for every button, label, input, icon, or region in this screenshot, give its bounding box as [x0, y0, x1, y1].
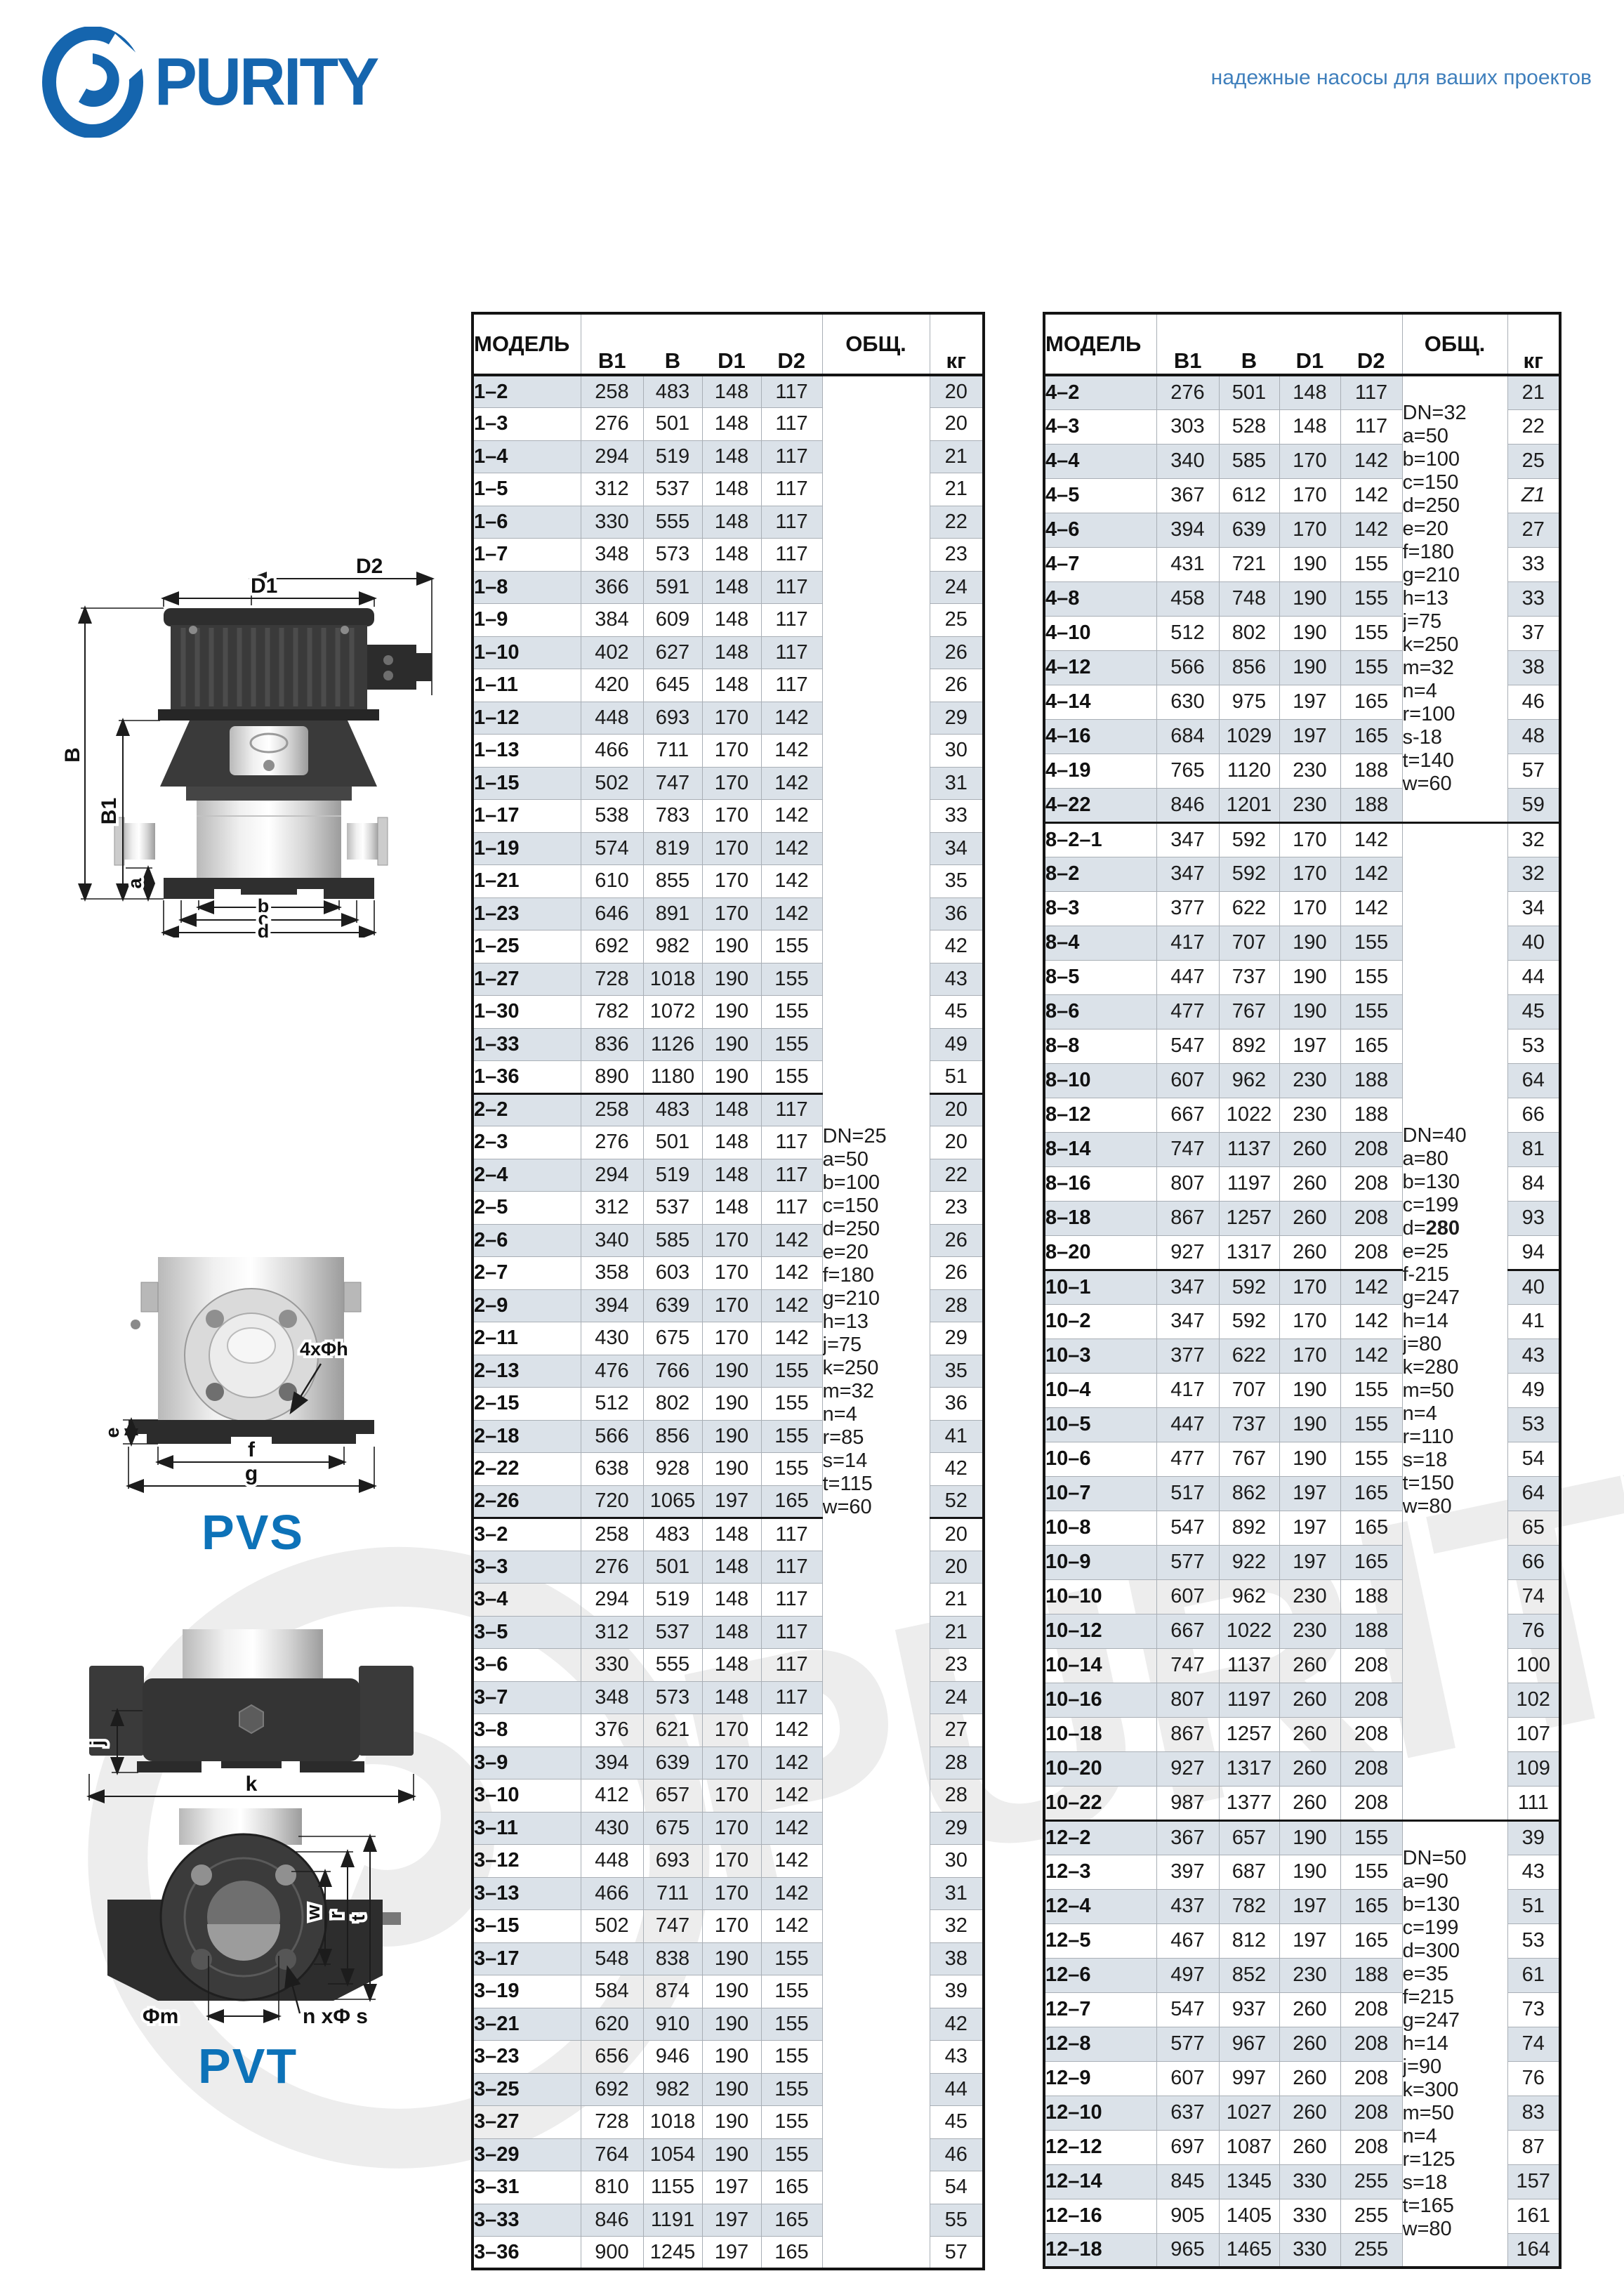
dimension-cell: 148	[702, 1681, 761, 1714]
dimension-cell: 855	[643, 865, 702, 898]
model-cell: 1–13	[473, 735, 581, 768]
dimension-cell: 155	[761, 1942, 822, 1975]
dimension-cell: 547	[1156, 1029, 1219, 1063]
weight-cell: 46	[1507, 685, 1560, 719]
dimension-cell: 312	[581, 1616, 643, 1649]
dimension-cell: 142	[761, 1877, 822, 1910]
model-cell: 1–30	[473, 996, 581, 1029]
dimension-cell: 1201	[1219, 788, 1279, 822]
dimension-cell: 260	[1279, 1786, 1340, 1820]
dimension-cell: 155	[1340, 960, 1402, 994]
model-cell: 1–27	[473, 963, 581, 996]
col-header-obsh: ОБЩ.	[1402, 313, 1507, 375]
model-cell: 3–31	[473, 2171, 581, 2204]
weight-cell: 20	[930, 1126, 984, 1159]
weight-cell: 21	[930, 440, 984, 473]
dimension-cell: 348	[581, 539, 643, 572]
dimension-cell: 962	[1219, 1063, 1279, 1098]
dimension-cell: 483	[643, 375, 702, 408]
dimension-cell: 367	[1156, 1820, 1219, 1855]
dimension-cell: 997	[1219, 2061, 1279, 2096]
model-cell: 4–16	[1044, 719, 1156, 754]
dimension-cell: 802	[1219, 616, 1279, 650]
dimension-cell: 394	[1156, 513, 1219, 547]
dim-label-m: Φm	[143, 2005, 178, 2028]
model-cell: 2–9	[473, 1289, 581, 1322]
dimension-cell: 188	[1340, 1063, 1402, 1098]
model-cell: 3–4	[473, 1584, 581, 1617]
weight-cell: 66	[1507, 1098, 1560, 1132]
dimension-cell: 117	[761, 506, 822, 539]
dimension-cell: 260	[1279, 2061, 1340, 2096]
model-cell: 1–4	[473, 440, 581, 473]
weight-cell: 43	[930, 2041, 984, 2074]
dimension-cell: 117	[761, 571, 822, 604]
dimension-cell: 142	[1340, 1304, 1402, 1338]
weight-cell: 24	[930, 571, 984, 604]
dimension-cell: 376	[581, 1714, 643, 1747]
dimension-cell: 190	[1279, 1820, 1340, 1855]
weight-cell: 23	[930, 1649, 984, 1682]
model-cell: 12–8	[1044, 2027, 1156, 2061]
dimension-cell: 807	[1156, 1166, 1219, 1201]
dimension-cell: 170	[702, 1910, 761, 1943]
dimension-cell: 537	[643, 1192, 702, 1225]
dimension-cell: 852	[1219, 1958, 1279, 1992]
model-cell: 3–8	[473, 1714, 581, 1747]
dimension-cell: 188	[1340, 1958, 1402, 1992]
model-cell: 12–5	[1044, 1923, 1156, 1958]
dimension-cell: 190	[1279, 960, 1340, 994]
model-cell: 3–15	[473, 1910, 581, 1943]
dimension-cell: 170	[702, 832, 761, 865]
dimension-cell: 766	[643, 1355, 702, 1388]
dimension-cell: 622	[1219, 891, 1279, 926]
model-cell: 10–1	[1044, 1270, 1156, 1304]
dimension-cell: 117	[761, 1551, 822, 1584]
dimension-cell: 170	[702, 767, 761, 800]
dimension-cell: 657	[643, 1780, 702, 1813]
dimension-cell: 512	[1156, 616, 1219, 650]
dim-label-d1: D1	[251, 574, 277, 598]
col-header-d1: D1	[702, 313, 761, 375]
weight-cell: 46	[930, 2138, 984, 2171]
dimension-cell: 447	[1156, 960, 1219, 994]
dimension-cell: 230	[1279, 1098, 1340, 1132]
dimension-cell: 577	[1156, 2027, 1219, 2061]
weight-cell: 32	[1507, 857, 1560, 891]
dimension-cell: 620	[581, 2008, 643, 2041]
weight-cell: 22	[930, 506, 984, 539]
dimension-cell: 190	[1279, 1855, 1340, 1889]
weight-cell: 51	[930, 1061, 984, 1094]
weight-cell: 64	[1507, 1063, 1560, 1098]
model-cell: 10–6	[1044, 1442, 1156, 1476]
model-cell: 2–22	[473, 1453, 581, 1486]
dimension-cell: 170	[702, 1224, 761, 1257]
dim-label-bolt: 4xΦh	[300, 1338, 348, 1360]
dimension-cell: 170	[702, 1877, 761, 1910]
weight-cell: 32	[930, 1910, 984, 1943]
model-cell: 10–8	[1044, 1511, 1156, 1545]
model-cell: 4–10	[1044, 616, 1156, 650]
dimension-cell: 987	[1156, 1786, 1219, 1820]
dimension-cell: 197	[702, 2171, 761, 2204]
dim-label-d: d	[258, 921, 270, 938]
dimension-cell: 190	[702, 2008, 761, 2041]
dimension-cell: 155	[761, 1355, 822, 1388]
dimension-cell: 646	[581, 897, 643, 930]
weight-cell: 49	[1507, 1373, 1560, 1407]
model-cell: 3–5	[473, 1616, 581, 1649]
model-cell: 1–36	[473, 1061, 581, 1094]
dimension-cell: 603	[643, 1257, 702, 1290]
dimension-cell: 117	[761, 375, 822, 408]
dimension-cell: 188	[1340, 1579, 1402, 1614]
dimension-cell: 142	[1340, 857, 1402, 891]
dimension-cell: 639	[643, 1289, 702, 1322]
dimension-cell: 260	[1279, 1132, 1340, 1166]
dimension-cell: 377	[1156, 1338, 1219, 1373]
dimension-cell: 1054	[643, 2138, 702, 2171]
dimension-cell: 982	[643, 2073, 702, 2106]
weight-cell: 26	[930, 1257, 984, 1290]
model-cell: 4–8	[1044, 581, 1156, 616]
dimension-cell: 707	[1219, 1373, 1279, 1407]
dimension-cell: 867	[1156, 1201, 1219, 1235]
dimension-cell: 117	[1340, 375, 1402, 409]
dimension-cell: 1317	[1219, 1235, 1279, 1270]
dimension-cell: 170	[1279, 1338, 1340, 1373]
dimension-cell: 190	[1279, 994, 1340, 1029]
dimension-cell: 142	[761, 800, 822, 833]
dimension-cell: 303	[1156, 409, 1219, 444]
dimension-cell: 260	[1279, 2096, 1340, 2130]
weight-cell: 36	[930, 1388, 984, 1421]
dimension-cell: 767	[1219, 994, 1279, 1029]
dimension-cell: 170	[702, 1257, 761, 1290]
weight-cell: 157	[1507, 2164, 1560, 2199]
dimension-cell: 142	[1340, 891, 1402, 926]
dimension-cell: 1027	[1219, 2096, 1279, 2130]
model-cell: 3–2	[473, 1518, 581, 1551]
dimension-cell: 170	[702, 702, 761, 735]
dimension-cell: 437	[1156, 1889, 1219, 1923]
dimension-cell: 165	[761, 1485, 822, 1518]
model-cell: 1–10	[473, 636, 581, 669]
dimension-cell: 190	[702, 1942, 761, 1975]
dimension-cell: 260	[1279, 2130, 1340, 2164]
dimension-cell: 117	[761, 1159, 822, 1192]
model-cell: 12–7	[1044, 1992, 1156, 2027]
dimension-cell: 384	[581, 604, 643, 637]
dimension-cell: 477	[1156, 994, 1219, 1029]
dimension-cell: 165	[1340, 1476, 1402, 1511]
dimension-cell: 260	[1279, 2027, 1340, 2061]
dimension-cell: 783	[643, 800, 702, 833]
dimension-cell: 747	[643, 767, 702, 800]
dimension-cell: 170	[702, 1812, 761, 1845]
model-cell: 2–6	[473, 1224, 581, 1257]
dimension-cell: 347	[1156, 857, 1219, 891]
dimension-cell: 142	[761, 1780, 822, 1813]
weight-cell: 48	[1507, 719, 1560, 754]
dimension-cell: 148	[702, 539, 761, 572]
model-cell: 4–3	[1044, 409, 1156, 444]
dimension-cell: 197	[702, 1485, 761, 1518]
dimension-cell: 155	[761, 1061, 822, 1094]
weight-cell: 87	[1507, 2130, 1560, 2164]
dimension-cell: 1191	[643, 2204, 702, 2237]
logo-wordmark: PURITY	[154, 44, 377, 121]
dimension-cell: 497	[1156, 1958, 1219, 1992]
dimension-cell: 155	[1340, 1442, 1402, 1476]
weight-cell: 43	[1507, 1855, 1560, 1889]
dimension-cell: 312	[581, 473, 643, 506]
dimension-cell: 612	[1219, 478, 1279, 513]
dimension-cell: 155	[761, 2073, 822, 2106]
model-cell: 4–12	[1044, 650, 1156, 685]
weight-cell: 25	[930, 604, 984, 637]
dimension-cell: 142	[1340, 822, 1402, 857]
weight-cell: 38	[1507, 650, 1560, 685]
dimension-cell: 547	[1156, 1511, 1219, 1545]
dimension-cell: 812	[1219, 1923, 1279, 1958]
dimension-cell: 862	[1219, 1476, 1279, 1511]
weight-cell: 28	[930, 1289, 984, 1322]
model-cell: 3–13	[473, 1877, 581, 1910]
dimension-cell: 165	[1340, 1511, 1402, 1545]
dimension-cell: 1197	[1219, 1166, 1279, 1201]
dimension-cell: 148	[702, 408, 761, 441]
weight-cell: 23	[930, 539, 984, 572]
dimension-cell: 197	[1279, 1545, 1340, 1579]
dimension-cell: 190	[702, 1453, 761, 1486]
dimension-cell: 208	[1340, 2061, 1402, 2096]
dimension-cell: 117	[761, 539, 822, 572]
weight-cell: 21	[1507, 375, 1560, 409]
weight-cell: 51	[1507, 1889, 1560, 1923]
model-cell: 1–15	[473, 767, 581, 800]
dimension-cell: 330	[581, 506, 643, 539]
model-cell: 1–3	[473, 408, 581, 441]
weight-cell: 34	[1507, 891, 1560, 926]
dimension-cell: 622	[1219, 1338, 1279, 1373]
model-cell: 12–6	[1044, 1958, 1156, 1992]
dimension-cell: 639	[1219, 513, 1279, 547]
dimension-cell: 982	[643, 930, 702, 963]
dimension-cell: 693	[643, 702, 702, 735]
col-header-obsh: ОБЩ.	[822, 313, 930, 375]
dimension-cell: 117	[761, 1518, 822, 1551]
dimension-cell: 155	[761, 1028, 822, 1061]
model-cell: 3–17	[473, 1942, 581, 1975]
dimension-cell: 190	[1279, 547, 1340, 581]
dimension-cell: 190	[702, 2041, 761, 2074]
model-cell: 2–26	[473, 1485, 581, 1518]
dimension-cell: 867	[1156, 1717, 1219, 1751]
dimension-cell: 230	[1279, 1063, 1340, 1098]
dimension-cell: 197	[1279, 1889, 1340, 1923]
weight-cell: 73	[1507, 1992, 1560, 2027]
weight-cell: 22	[1507, 409, 1560, 444]
dimension-cell: 737	[1219, 960, 1279, 994]
weight-cell: 20	[930, 375, 984, 408]
model-cell: 10–5	[1044, 1407, 1156, 1442]
model-cell: 10–16	[1044, 1683, 1156, 1717]
dimension-cell: 148	[1279, 375, 1340, 409]
model-cell: 8–18	[1044, 1201, 1156, 1235]
weight-cell: 53	[1507, 1029, 1560, 1063]
dimension-cell: 1317	[1219, 1751, 1279, 1786]
dimension-cell: 1065	[643, 1485, 702, 1518]
dimension-cell: 447	[1156, 1407, 1219, 1442]
dimension-cell: 420	[581, 669, 643, 702]
weight-cell: 26	[930, 669, 984, 702]
dimension-cell: 170	[1279, 1304, 1340, 1338]
brand-logo: PURITY	[37, 27, 389, 138]
dimension-cell: 148	[702, 1518, 761, 1551]
dimension-cell: 802	[643, 1388, 702, 1421]
dimension-cell: 142	[761, 897, 822, 930]
dimension-cell: 155	[761, 2008, 822, 2041]
dimension-cell: 197	[1279, 719, 1340, 754]
col-header-b1: B1	[1156, 313, 1219, 375]
dimension-cell: 190	[702, 996, 761, 1029]
model-cell: 2–13	[473, 1355, 581, 1388]
weight-cell: 45	[930, 996, 984, 1029]
dimension-cell: 892	[1219, 1029, 1279, 1063]
model-cell: 2–18	[473, 1420, 581, 1453]
weight-cell: 49	[930, 1028, 984, 1061]
weight-cell: 43	[1507, 1338, 1560, 1373]
dimension-cell: 208	[1340, 2130, 1402, 2164]
dimension-cell: 148	[702, 440, 761, 473]
dimension-cell: 142	[1340, 513, 1402, 547]
table-row: 8–2–1347592170142DN=40a=80b=130c=199d=28…	[1044, 822, 1560, 857]
dimension-cell: 165	[761, 2237, 822, 2270]
weight-cell: 38	[930, 1942, 984, 1975]
dimension-cell: 1126	[643, 1028, 702, 1061]
col-header-b: B	[643, 313, 702, 375]
dimension-cell: 340	[1156, 444, 1219, 478]
dimension-cell: 155	[1340, 1820, 1402, 1855]
dimension-cell: 810	[581, 2171, 643, 2204]
weight-cell: 53	[1507, 1407, 1560, 1442]
dimension-cell: 927	[1156, 1751, 1219, 1786]
dimension-cell: 142	[1340, 1270, 1402, 1304]
dimension-cell: 1087	[1219, 2130, 1279, 2164]
model-cell: 1–12	[473, 702, 581, 735]
dimension-cell: 155	[761, 2041, 822, 2074]
dimension-cell: 512	[581, 1388, 643, 1421]
dimension-cell: 165	[1340, 1923, 1402, 1958]
pump-base-drawing: j k	[53, 1629, 449, 1808]
dimension-cell: 720	[581, 1485, 643, 1518]
dimension-cell: 358	[581, 1257, 643, 1290]
weight-cell: 66	[1507, 1545, 1560, 1579]
dimension-cell: 148	[702, 604, 761, 637]
dimension-cell: 1257	[1219, 1717, 1279, 1751]
model-cell: 1–21	[473, 865, 581, 898]
dimension-cell: 684	[1156, 719, 1219, 754]
dimension-cell: 117	[761, 1192, 822, 1225]
weight-cell: 45	[1507, 994, 1560, 1029]
weight-cell: 22	[930, 1159, 984, 1192]
dimension-cell: 477	[1156, 1442, 1219, 1476]
dimension-cell: 519	[643, 440, 702, 473]
model-cell: 2–4	[473, 1159, 581, 1192]
dimension-cell: 609	[643, 604, 702, 637]
dimension-cell: 155	[761, 2138, 822, 2171]
weight-cell: 37	[1507, 616, 1560, 650]
col-header-kg: кг	[930, 313, 984, 375]
dimension-cell: 367	[1156, 478, 1219, 513]
dimension-cell: 607	[1156, 1063, 1219, 1098]
dimension-cell: 965	[1156, 2233, 1219, 2268]
model-cell: 12–18	[1044, 2233, 1156, 2268]
dimension-cell: 188	[1340, 1098, 1402, 1132]
weight-cell: 29	[930, 1322, 984, 1355]
dimension-cell: 348	[581, 1681, 643, 1714]
dimensions-table-left: МОДЕЛЬB1BD1D2ОБЩ.кг1–2258483148117DN=25a…	[471, 312, 985, 2270]
weight-cell: 161	[1507, 2199, 1560, 2233]
dimension-cell: 502	[581, 767, 643, 800]
dimension-cell: 330	[581, 1649, 643, 1682]
dimension-cell: 117	[761, 636, 822, 669]
dimension-cell: 312	[581, 1192, 643, 1225]
dimension-cell: 148	[702, 375, 761, 408]
dimension-cell: 197	[702, 2237, 761, 2270]
col-header-kg: кг	[1507, 313, 1560, 375]
dimension-cell: 767	[1219, 1442, 1279, 1476]
weight-cell: 20	[930, 1518, 984, 1551]
dimension-cell: 573	[643, 1681, 702, 1714]
dimension-cell: 197	[1279, 1511, 1340, 1545]
dimension-cell: 148	[702, 473, 761, 506]
dimension-cell: 501	[1219, 375, 1279, 409]
dimension-cell: 148	[702, 1126, 761, 1159]
dimension-cell: 148	[702, 669, 761, 702]
model-cell: 1–9	[473, 604, 581, 637]
dimension-cell: 165	[1340, 719, 1402, 754]
dimension-cell: 656	[581, 2041, 643, 2074]
model-cell: 10–9	[1044, 1545, 1156, 1579]
weight-cell: 32	[1507, 822, 1560, 857]
dimension-cell: 431	[1156, 547, 1219, 581]
dimension-cell: 142	[761, 702, 822, 735]
dimension-cell: 555	[643, 1649, 702, 1682]
dimension-cell: 501	[643, 1126, 702, 1159]
dimension-cell: 117	[761, 604, 822, 637]
dimension-cell: 170	[702, 1780, 761, 1813]
weight-cell: 42	[930, 2008, 984, 2041]
dimension-cell: 501	[643, 408, 702, 441]
common-dimensions-cell: DN=40a=80b=130c=199d=280e=25f-215g=247h=…	[1402, 822, 1507, 1820]
weight-cell: 164	[1507, 2233, 1560, 2268]
dimension-cell: 197	[1279, 1476, 1340, 1511]
dimension-cell: 148	[702, 1649, 761, 1682]
dimension-cell: 190	[1279, 1407, 1340, 1442]
dimension-cell: 330	[1279, 2164, 1340, 2199]
dimension-cell: 165	[1340, 1889, 1402, 1923]
model-cell: 1–5	[473, 473, 581, 506]
model-cell: 4–2	[1044, 375, 1156, 409]
dimension-cell: 430	[581, 1812, 643, 1845]
dimension-cell: 276	[581, 1126, 643, 1159]
header-row: МОДЕЛЬB1BD1D2ОБЩ.кг	[473, 313, 984, 375]
weight-cell: 100	[1507, 1648, 1560, 1683]
